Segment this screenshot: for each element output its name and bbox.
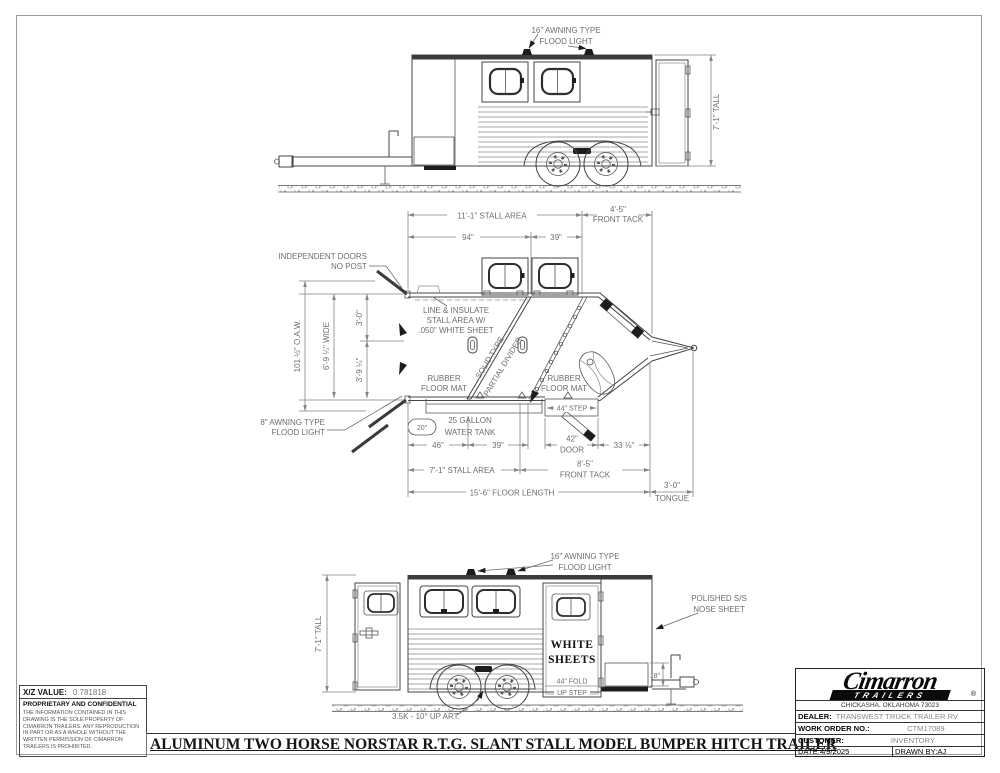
cimarron-logo: Cimarron TRAILERS ® (796, 669, 984, 700)
svg-text:NO POST: NO POST (331, 262, 367, 271)
flood-light-label: 16" AWNING TYPE (550, 552, 619, 561)
front-tack-bottom-dim: 8'-5" (577, 460, 593, 469)
svg-text:DOOR: DOOR (560, 446, 584, 455)
tie-ring (468, 337, 477, 353)
wheel (584, 142, 628, 186)
stall-area-dim: 11'-1" STALL AREA (457, 212, 527, 221)
registered-mark: ® (971, 691, 976, 698)
white-sheets-label: WHITE (551, 639, 594, 651)
drawing-sheet: 16" AWNING TYPE FLOOD LIGHT 7'-1" TALL (0, 0, 1000, 773)
svg-text:.050" WHITE SHEET: .050" WHITE SHEET (418, 326, 493, 335)
axle-note: 3.5K - 10° UP ART. (392, 712, 460, 721)
flood-light-icon (506, 569, 516, 575)
independent-doors-label: INDEPENDENT DOORS (278, 252, 367, 261)
tongue-dim: 3'-0" (664, 481, 680, 490)
svg-text:WATER TANK: WATER TANK (445, 428, 496, 437)
flood-light-icon (466, 569, 476, 575)
water-tank (426, 399, 542, 413)
water-tank-label: 25 GALLON (448, 416, 492, 425)
wheel (536, 142, 580, 186)
dim-39b: 39" (492, 441, 504, 450)
gravel-guard (605, 663, 648, 686)
front-tack-dim: 4'-5" (610, 205, 626, 214)
open-rear-door (352, 425, 388, 452)
brand-address: CHICKASHA, OKLAHOMA 73023 (796, 700, 984, 710)
rear-door (353, 583, 400, 690)
height-dim: 7'-1" TALL (712, 93, 721, 130)
svg-text:FLOOD LIGHT: FLOOD LIGHT (558, 563, 611, 572)
fold-step-label: 44" FOLD (557, 679, 588, 686)
date-value: 4/9/2025 (820, 747, 850, 756)
wide-dim: 6'-9 ¼" WIDE (322, 322, 331, 370)
svg-text:UP STEP: UP STEP (557, 690, 587, 697)
side-elevation-top: 16" AWNING TYPE FLOOD LIGHT 7'-1" TALL (275, 26, 742, 192)
proprietary-title: PROPRIETARY AND CONFIDENTIAL (23, 701, 143, 708)
trailer-drawing: 16" AWNING TYPE FLOOD LIGHT 7'-1" TALL (0, 0, 1000, 773)
dim-94: 94" (462, 233, 474, 242)
work-order-label: WORK ORDER NO.: (798, 724, 870, 733)
window (420, 586, 468, 617)
work-order-value: CTM17089 (870, 724, 982, 733)
wheel (485, 665, 529, 709)
drawn-by-label: DRAWN BY: (895, 747, 937, 756)
dealer-value: TRANSWEST TRUCK TRAILER RV (836, 712, 958, 721)
proprietary-box: PROPRIETARY AND CONFIDENTIAL THE INFORMA… (19, 698, 147, 757)
svg-text:TONGUE: TONGUE (655, 494, 689, 503)
drawn-by-cell: DRAWN BY: AJ (893, 747, 984, 756)
rear-door (646, 60, 690, 166)
dealer-row: DEALER: TRANSWEST TRUCK TRAILER RV (796, 710, 984, 722)
gravel-guard (414, 137, 454, 165)
bubble-20-label: 20" (417, 425, 428, 432)
customer-label: CUSTOMER: (798, 736, 844, 745)
date-cell: DATE: 4/9/2025 (796, 747, 893, 756)
polished-nose-label: POLISHED S/S (691, 594, 747, 603)
window (534, 62, 580, 102)
plan-view: 20" 44" STEP 11'-1" STALL AREA 4'-5" FRO… (260, 205, 696, 503)
date-drawn-row: DATE: 4/9/2025 DRAWN BY: AJ (796, 746, 984, 756)
blanket-bar (600, 299, 644, 339)
rubber-mat-label: RUBBER (427, 374, 461, 383)
roof-rail (408, 575, 652, 580)
dim-46: 46" (432, 441, 444, 450)
open-rear-door (369, 400, 406, 427)
window (482, 258, 528, 295)
dim-18: 18" (650, 673, 661, 680)
dim-33: 33 ⅛" (614, 441, 635, 450)
dressing-room-door: WHITE SHEETS 44" FOLD UP STEP (543, 583, 603, 697)
dealer-label: DEALER: (798, 712, 832, 721)
customer-row: CUSTOMER: INVENTORY (796, 734, 984, 746)
window (532, 258, 578, 295)
svg-text:FRONT TACK: FRONT TACK (593, 215, 644, 224)
flood-light-label: 16" AWNING TYPE (531, 26, 600, 35)
dim-3-9: 3'-9 ¼" (355, 357, 364, 382)
drawing-title: ALUMINUM TWO HORSE NORSTAR R.T.G. SLANT … (150, 736, 792, 754)
roof-rail (412, 55, 652, 60)
brand-sub: TRAILERS (853, 691, 928, 700)
dim-3-0: 3'-0" (355, 310, 364, 326)
door-dim: 42" (566, 435, 578, 444)
window (472, 586, 520, 617)
floor-length-dim: 15'-6" FLOOR LENGTH (470, 489, 555, 498)
work-order-row: WORK ORDER NO.: CTM17089 (796, 722, 984, 734)
hitch-assembly (275, 131, 413, 184)
side-elevation-bottom: WHITE SHEETS 44" FOLD UP STEP (314, 552, 747, 721)
stall-area-bottom-dim: 7'-1" STALL AREA (429, 466, 495, 475)
svg-text:SHEETS: SHEETS (548, 654, 596, 666)
title-block: Cimarron TRAILERS ® CHICKASHA, OKLAHOMA … (795, 668, 985, 757)
ground-hatch (332, 705, 743, 712)
svg-text:FLOOR MAT: FLOOR MAT (421, 384, 467, 393)
insulate-label: LINE & INSULATE (423, 306, 489, 315)
svg-text:FLOOD LIGHT: FLOOD LIGHT (272, 428, 325, 437)
customer-value: INVENTORY (844, 736, 982, 745)
awning-light-label: 8" AWNING TYPE (260, 418, 325, 427)
dim-39: 39" (550, 233, 562, 242)
brand-banner: TRAILERS (829, 690, 951, 700)
date-label: DATE: (798, 747, 820, 756)
ground-hatch (278, 186, 741, 193)
flood-light-icon (522, 49, 532, 55)
step-dim: 44" STEP (557, 406, 588, 413)
oaw-dim: 101 ½" O.A.W. (293, 320, 302, 373)
drawn-by-value: AJ (937, 747, 946, 756)
window (482, 62, 528, 102)
xz-value: 0.781818 (73, 688, 106, 697)
svg-text:FRONT TACK: FRONT TACK (560, 471, 611, 480)
proprietary-text: THE INFORMATION CONTAINED IN THIS DRAWIN… (23, 710, 143, 751)
flood-light-label: FLOOD LIGHT (539, 37, 592, 46)
height-dim: 7'-1" TALL (314, 615, 323, 652)
xz-value-box: X/Z VALUE: 0.781818 (19, 685, 147, 699)
flood-light-icon (584, 49, 594, 55)
svg-text:STALL AREA W/: STALL AREA W/ (427, 316, 486, 325)
svg-text:FLOOR MAT: FLOOR MAT (541, 384, 587, 393)
svg-text:NOSE SHEET: NOSE SHEET (693, 605, 745, 614)
xz-value-label: X/Z VALUE: (23, 688, 67, 697)
rubber-mat-label: RUBBER (547, 374, 581, 383)
